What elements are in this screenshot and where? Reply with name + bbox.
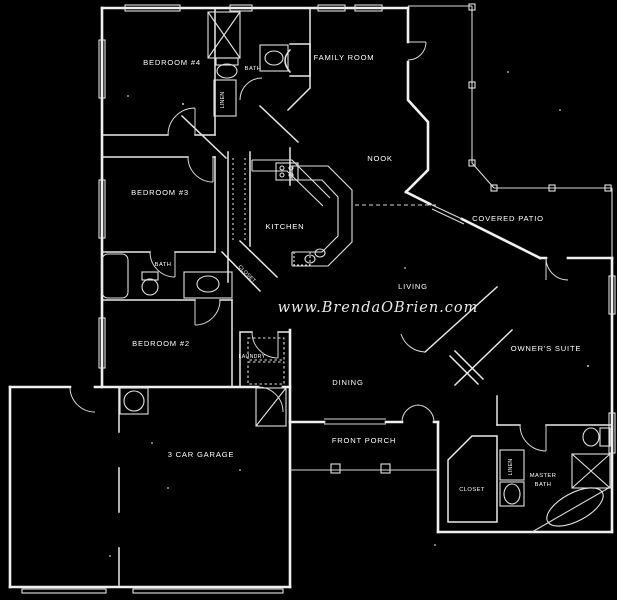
sink-master xyxy=(504,484,520,504)
pantry-shelves-dashed xyxy=(233,158,245,240)
kitchen-island xyxy=(292,166,352,266)
slider-door xyxy=(430,204,464,224)
door-bath4 xyxy=(240,78,262,100)
label-front-porch: FRONT PORCH xyxy=(332,436,396,445)
island-sink-2 xyxy=(315,249,325,257)
angled-door xyxy=(450,351,483,384)
label-kitchen: KITCHEN xyxy=(266,222,305,231)
label-nook: NOOK xyxy=(367,154,393,163)
door-master-bath xyxy=(520,425,546,451)
shower-master-x xyxy=(572,454,610,488)
vanity-bath4 xyxy=(260,45,288,71)
garage-door-1 xyxy=(22,589,106,593)
wall-hall-diag-1 xyxy=(182,116,226,158)
label-bath-upper: BATH xyxy=(245,66,262,72)
fireplace-niche xyxy=(285,44,310,76)
floor-plan-image: BEDROOM #4 BATH FAMILY ROOM NOOK KITCHEN… xyxy=(0,0,617,600)
door-bedroom4 xyxy=(168,108,195,135)
porch-column-2 xyxy=(381,464,390,473)
interior-walls xyxy=(102,8,612,585)
wall-vestibule-2 xyxy=(455,330,512,385)
label-bedroom-3: BEDROOM #3 xyxy=(131,188,189,197)
kitchen-peninsula xyxy=(252,160,330,206)
label-garage: 3 CAR GARAGE xyxy=(168,450,235,459)
garage-door-2 xyxy=(133,589,283,593)
exterior-walls xyxy=(10,8,612,587)
label-family-room: FAMILY ROOM xyxy=(314,53,375,62)
watermark-text: www.BrendaOBrien.com xyxy=(278,300,479,316)
door-bedroom2 xyxy=(195,300,220,325)
door-family-patio xyxy=(408,42,426,60)
label-master-bath-line1: MASTER xyxy=(530,473,557,479)
tub-bath-hall xyxy=(102,254,128,298)
fixtures xyxy=(22,4,615,593)
room-labels: BEDROOM #4 BATH FAMILY ROOM NOOK KITCHEN… xyxy=(131,53,581,493)
door-vestibule xyxy=(401,334,425,352)
sink-bath-hall xyxy=(197,276,219,292)
label-master-bath-line2: BATH xyxy=(535,482,552,488)
door-suite xyxy=(546,258,568,280)
label-covered-patio: COVERED PATIO xyxy=(472,214,544,223)
label-bedroom-4: BEDROOM #4 xyxy=(143,58,201,67)
wall-family-east-nook-bay xyxy=(406,8,428,192)
label-linen-master: LINEN xyxy=(508,459,514,476)
burner-3 xyxy=(280,173,284,177)
door-arcs xyxy=(70,42,568,451)
toilet-master-bowl xyxy=(583,428,599,446)
porch-column-1 xyxy=(331,464,340,473)
wall-hall-closet xyxy=(222,241,277,291)
door-garage-1 xyxy=(70,387,95,412)
wall-hall-diag-2 xyxy=(260,106,298,142)
wall-bath4-east xyxy=(288,8,310,110)
label-laundry: LAUNDRY xyxy=(239,354,266,360)
sink-bath4 xyxy=(265,51,283,65)
dryer-dashed xyxy=(248,362,284,384)
door-entry-double xyxy=(402,405,434,422)
burner-1 xyxy=(280,166,284,170)
dining-window xyxy=(324,419,386,424)
wall-vestibule-1 xyxy=(425,287,497,352)
water-heater xyxy=(124,391,144,411)
toilet-bath4-bowl xyxy=(217,64,237,78)
label-owners-suite: OWNER'S SUITE xyxy=(511,344,582,353)
garage-platform-diag xyxy=(256,388,286,426)
floor-plan-drawing: BEDROOM #4 BATH FAMILY ROOM NOOK KITCHEN… xyxy=(0,0,617,600)
toilet-bath-hall-bowl xyxy=(142,279,158,295)
wall-patio-diagonal xyxy=(406,192,540,258)
label-linen-upper: LINEN xyxy=(220,92,226,109)
label-bedroom-2: BEDROOM #2 xyxy=(132,339,190,348)
label-dining: DINING xyxy=(332,378,363,387)
label-bath-hall: BATH xyxy=(155,262,172,268)
wall-closet-master xyxy=(448,436,497,522)
label-closet-master: CLOSET xyxy=(459,487,485,493)
door-bedroom3 xyxy=(188,157,213,182)
label-closet-hall: CLOSET xyxy=(237,264,258,285)
shower-bath4-x xyxy=(208,12,240,58)
label-living: LIVING xyxy=(398,282,428,291)
